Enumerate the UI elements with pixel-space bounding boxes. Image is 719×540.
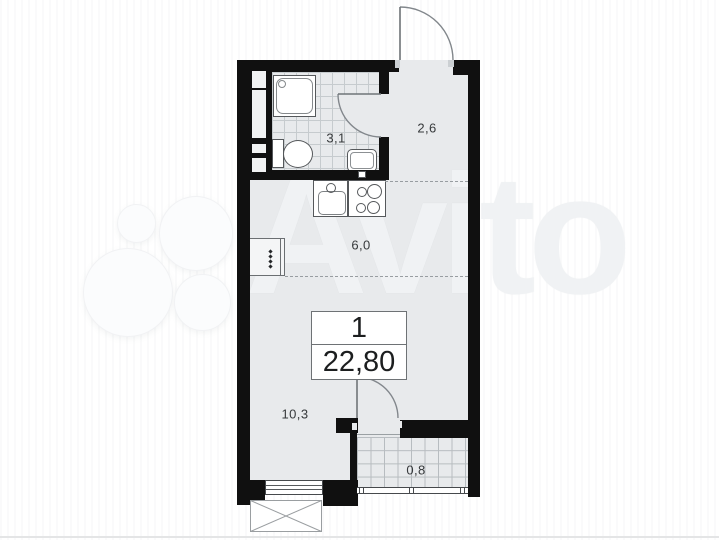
wardrobe-hook	[268, 249, 272, 253]
stove-burner	[357, 187, 367, 197]
wardrobe-door-line	[280, 239, 281, 275]
wall-bathroom-right-top	[379, 60, 389, 94]
kitchen-sink-unit	[313, 180, 348, 217]
avito-logo-circle-right	[174, 274, 231, 331]
bathroom-sink	[347, 149, 377, 172]
wall-bathroom-bottom	[250, 170, 389, 180]
wardrobe-hook	[268, 254, 272, 258]
zone-divider-hallway-kitchen	[385, 181, 468, 182]
zone-divider-kitchen-room	[285, 276, 468, 277]
wardrobe	[248, 238, 285, 276]
wall-right	[468, 60, 480, 497]
area-label-kitchen: 6,0	[351, 238, 370, 253]
duct-box	[252, 71, 266, 88]
wall-bottom-mid	[323, 480, 358, 506]
balcony-door-jamb	[352, 423, 357, 430]
image-bottom-edge	[0, 536, 719, 538]
area-label-bathroom: 3,1	[326, 131, 345, 146]
stove-burner	[367, 201, 380, 214]
duct-box	[252, 90, 266, 138]
unit-info-box: 1 22,80	[311, 311, 407, 380]
window	[265, 480, 323, 495]
glazing-mullion	[460, 488, 465, 493]
wardrobe-hook	[268, 259, 272, 263]
wardrobe-hook	[268, 264, 272, 268]
entrance-jamb	[448, 60, 454, 67]
kitchen-sink-basin	[318, 191, 346, 215]
area-label-hallway: 2,6	[417, 121, 436, 136]
stove-burner	[367, 184, 382, 199]
bathroom-sink-basin	[350, 152, 374, 169]
wall-balcony-right-seg	[400, 420, 468, 438]
duct-box	[252, 144, 266, 153]
unit-rooms-count: 1	[312, 312, 406, 345]
area-label-balcony: 0,8	[406, 463, 425, 478]
balcony-threshold	[357, 434, 400, 435]
bathroom-sink-faucet	[358, 171, 366, 178]
area-label-living-room: 10,3	[282, 407, 309, 422]
avito-logo-circle-top	[159, 196, 233, 271]
wall-bottom-left	[237, 480, 265, 505]
duct-box	[252, 158, 266, 172]
balcony-door-jamb	[397, 421, 402, 428]
balcony-glazing	[357, 487, 468, 494]
entrance-door-arc	[400, 7, 453, 60]
floorplan-image: Avito	[0, 0, 719, 540]
unit-total-area: 22,80	[312, 345, 406, 380]
exterior-cross-diagonal	[251, 501, 322, 532]
glazing-mullion	[409, 488, 414, 493]
glazing-mullion	[359, 488, 364, 493]
avito-logo-circle-small	[117, 204, 156, 243]
entrance-jamb	[395, 60, 400, 68]
exterior-cross-box	[251, 501, 322, 532]
shower-drain	[278, 80, 286, 88]
wall-bathroom-right-bottom	[379, 137, 389, 180]
exterior-cross-diagonal	[251, 501, 322, 532]
shower	[273, 75, 316, 117]
stove-burner	[356, 203, 366, 213]
toilet-bowl	[283, 140, 313, 168]
kitchen-sink-faucet	[326, 183, 336, 193]
wall-left	[237, 60, 250, 505]
stove	[348, 180, 386, 217]
avito-logo-circle-big	[83, 248, 173, 337]
